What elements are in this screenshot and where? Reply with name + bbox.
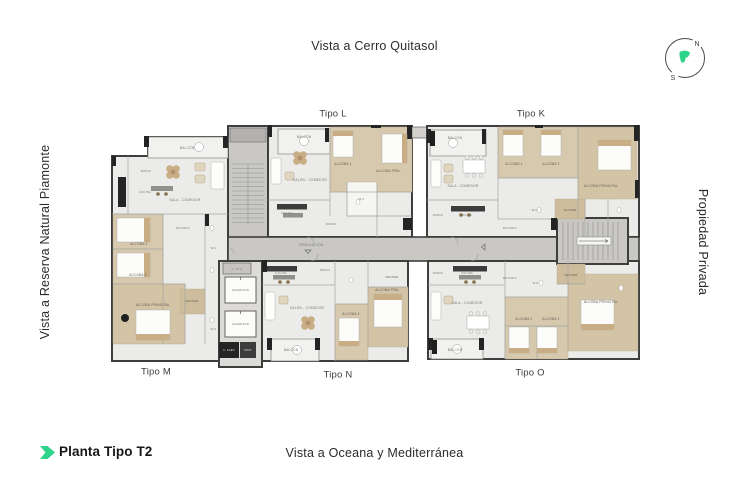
- room-label: ROPAS: [326, 222, 336, 226]
- room-label: COCINA: [461, 271, 473, 275]
- room-label: SHUT: [244, 349, 252, 352]
- page: Vista a Cerro Quitasol N S Vista a Reser…: [0, 0, 749, 500]
- room-label: W.C.: [359, 197, 366, 201]
- room-label: W.C.: [533, 281, 540, 285]
- compass-north-label: N: [694, 41, 699, 48]
- room-label: SALA - COMEDOR: [170, 198, 201, 202]
- room-label: ALCOBA PRINCIPAL: [584, 300, 618, 304]
- room-label: CIRCULACIÓN: [299, 242, 324, 247]
- room-label: ESTUDIO: [176, 226, 190, 230]
- room-label: BALCÓN: [297, 134, 312, 139]
- unit-label-tipo-m: Tipo M: [141, 367, 171, 378]
- room-label: C. ASEO: [223, 349, 235, 352]
- room-label: COCINA: [139, 190, 151, 194]
- room-label: BALCÓN: [284, 347, 299, 352]
- room-label: ESTUDIO: [503, 226, 517, 230]
- room-label: ALCOBA 2: [542, 317, 559, 321]
- room-label: SALA - COMEDOR: [448, 184, 479, 188]
- bottom-view-label: Vista a Oceana y Mediterránea: [0, 446, 749, 460]
- room-label: COCINA: [281, 211, 293, 215]
- room-label: ALCOBA 2: [542, 162, 559, 166]
- room-label: ROPAS: [320, 268, 330, 272]
- room-label: ALCOBA PRINCIPAL: [136, 303, 170, 307]
- unit-label-tipo-o: Tipo O: [515, 368, 544, 379]
- room-label: SALÓN - COMEDOR: [293, 177, 327, 182]
- room-label: ROPAS: [433, 271, 443, 275]
- room-label: ROPAS: [433, 213, 443, 217]
- left-view-label: Vista a Reserva Natural Piamonte: [38, 145, 52, 339]
- room-label: BALCÓN: [448, 347, 463, 352]
- room-label: BALCÓN: [448, 135, 463, 140]
- right-view-label: Propiedad Privada: [696, 189, 710, 295]
- room-label: VESTIER: [564, 273, 577, 277]
- room-label: ASCENSOR: [232, 288, 249, 292]
- unit-label-tipo-k: Tipo K: [517, 109, 545, 120]
- compass-arrow-icon: [679, 51, 690, 63]
- room-label: ESTUDIO: [503, 276, 517, 280]
- room-label: W.C.: [532, 208, 539, 212]
- room-label: ALCOBA 2: [129, 273, 146, 277]
- room-label: W.C.: [211, 327, 218, 331]
- compass-icon: N S: [660, 33, 712, 85]
- room-label: ALCOBA 1: [334, 162, 351, 166]
- room-label: SALÓN - COMEDOR: [290, 305, 324, 310]
- room-label: BALCÓN: [180, 145, 195, 150]
- room-label: VESTIER: [185, 299, 198, 303]
- room-label: W.C.: [211, 246, 218, 250]
- room-label: ALCOBA 1: [515, 317, 532, 321]
- room-label: ALCOBA PRINCIPAL: [584, 184, 618, 188]
- room-label: ALCOBA 1: [130, 242, 147, 246]
- unit-label-tipo-n: Tipo N: [324, 370, 353, 381]
- top-view-label: Vista a Cerro Quitasol: [0, 39, 749, 53]
- unit-label-tipo-l: Tipo L: [319, 109, 346, 120]
- room-label: ALCOBA 1: [505, 162, 522, 166]
- room-label: VESTIER: [563, 208, 576, 212]
- room-label: C. ÚTIL: [231, 267, 242, 271]
- room-label: SALA - COMEDOR: [452, 301, 483, 305]
- room-label: ROPAS: [141, 169, 151, 173]
- room-label: ALCOBA 2: [342, 312, 359, 316]
- room-label: COCINA: [275, 271, 287, 275]
- compass-south-label: S: [671, 75, 676, 82]
- room-label: ALCOBA PPAL.: [376, 169, 401, 173]
- room-label: VESTIER: [385, 275, 398, 279]
- floor-plan: BALCÓN ROPAS COCINA SALA - COMEDOR ESTUD…: [111, 120, 651, 368]
- room-label: ALCOBA PPAL.: [375, 288, 400, 292]
- room-label: ASCENSOR: [232, 322, 249, 326]
- room-label: COCINA: [460, 213, 472, 217]
